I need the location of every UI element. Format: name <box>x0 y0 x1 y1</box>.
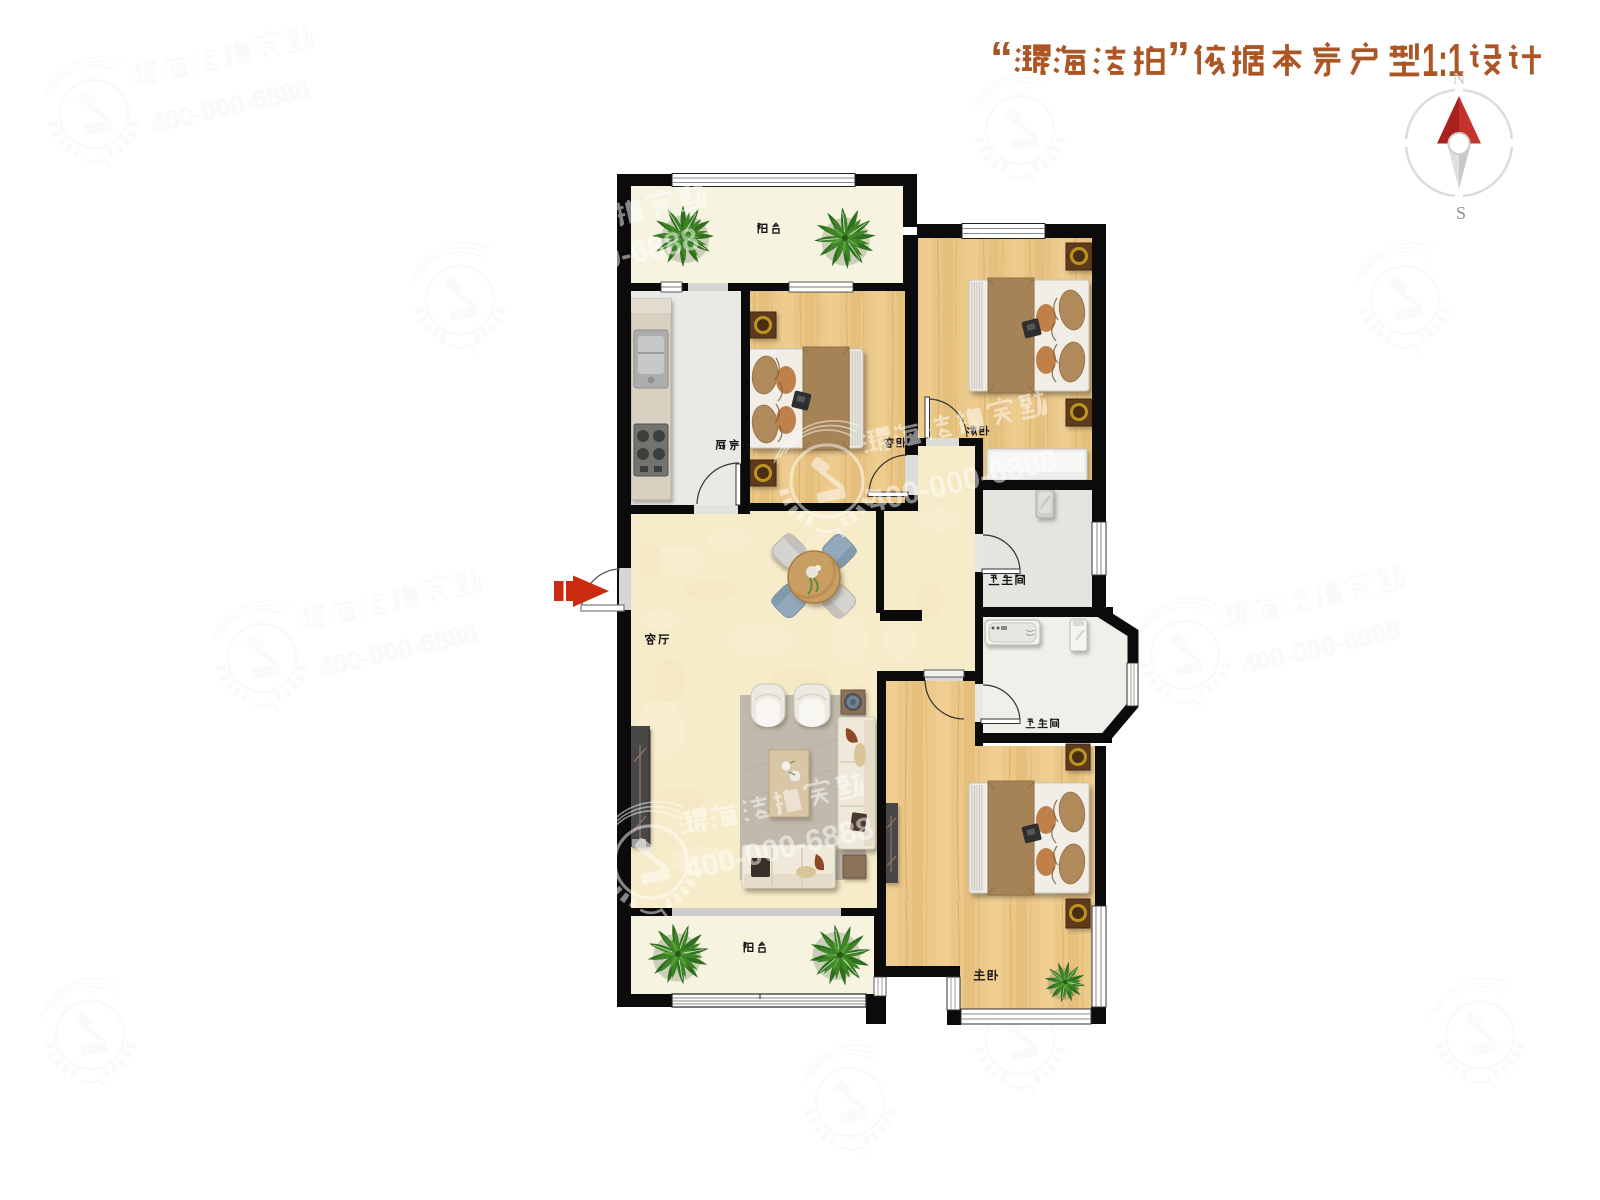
svg-text:400-000-6888: 400-000-6888 <box>1239 614 1404 680</box>
svg-text:S: S <box>1456 203 1466 223</box>
svg-text:400-000-6888: 400-000-6888 <box>148 73 313 139</box>
svg-text:N: N <box>1453 69 1465 88</box>
svg-text:“: “ <box>990 32 1013 84</box>
svg-text:”: ” <box>1167 32 1190 84</box>
svg-text:400-000-6888: 400-000-6888 <box>316 617 481 683</box>
